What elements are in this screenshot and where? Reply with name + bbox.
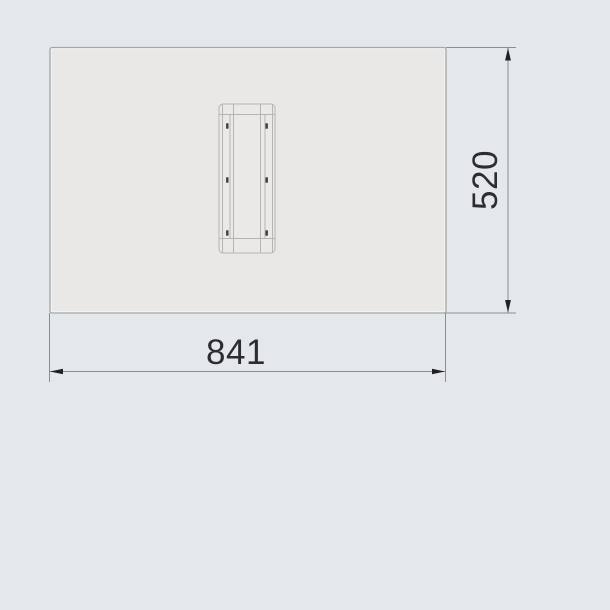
mark-right-top — [266, 123, 268, 128]
mark-left-middle — [226, 177, 228, 182]
mark-left-bottom — [226, 230, 228, 235]
drawing-canvas: 520 841 — [0, 0, 610, 610]
technical-drawing: 520 841 — [0, 0, 610, 610]
mark-right-bottom — [266, 230, 268, 235]
mark-right-middle — [266, 177, 268, 182]
width-dimension-label: 841 — [206, 333, 266, 372]
height-dimension-label: 520 — [466, 150, 505, 210]
mark-left-top — [226, 123, 228, 128]
